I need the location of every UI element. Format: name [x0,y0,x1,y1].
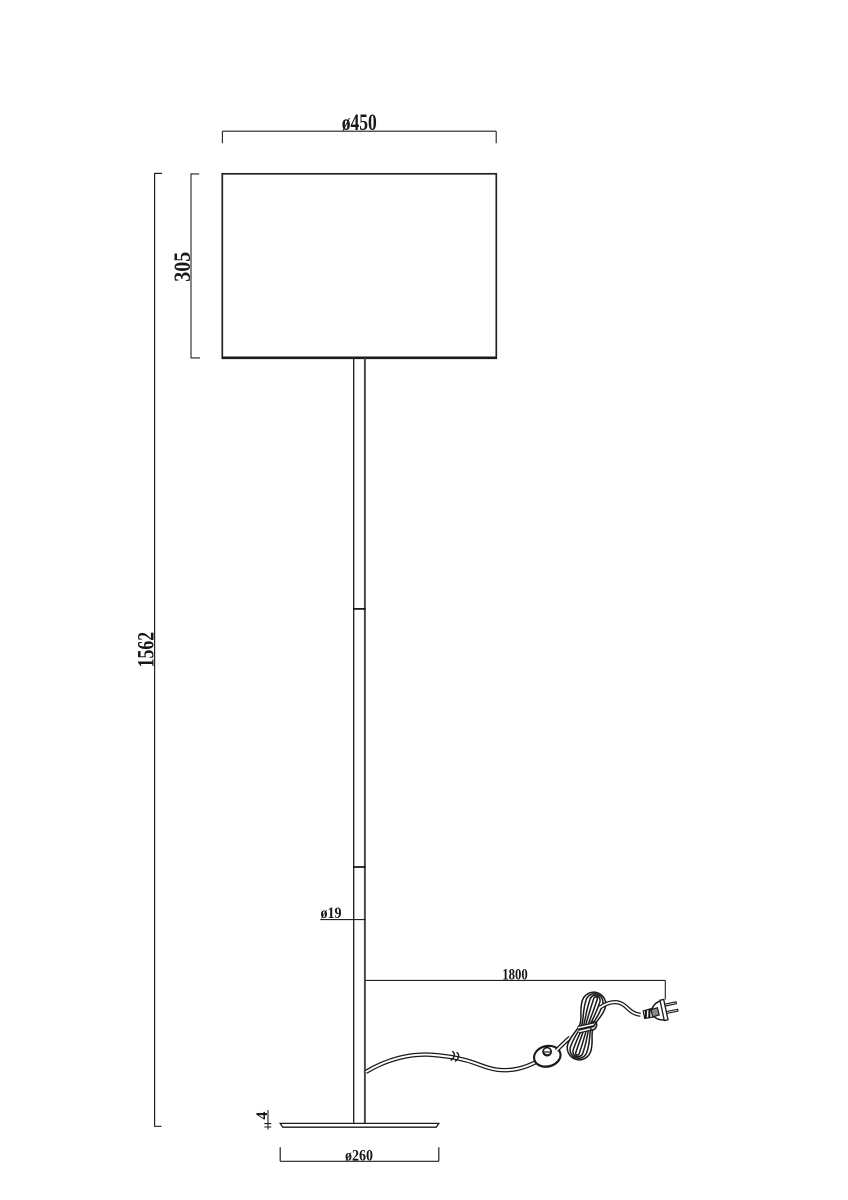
svg-text:305: 305 [170,252,196,282]
svg-text:ø450: ø450 [342,110,377,136]
svg-text:1800: 1800 [502,966,528,983]
svg-text:1562: 1562 [134,632,160,668]
svg-text:ø260: ø260 [345,1147,373,1164]
svg-text:4: 4 [254,1112,271,1120]
